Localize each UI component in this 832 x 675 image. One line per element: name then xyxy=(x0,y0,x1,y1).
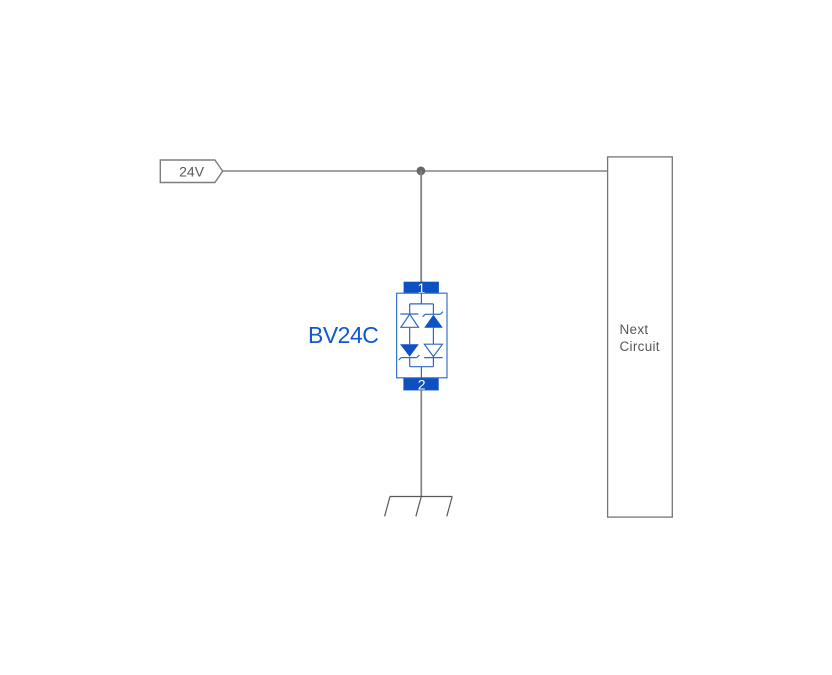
svg-text:Circuit: Circuit xyxy=(620,339,660,354)
svg-text:24V: 24V xyxy=(179,164,205,180)
svg-text:2: 2 xyxy=(418,376,426,392)
svg-text:Next: Next xyxy=(620,322,649,337)
svg-text:BV24C: BV24C xyxy=(308,322,378,348)
